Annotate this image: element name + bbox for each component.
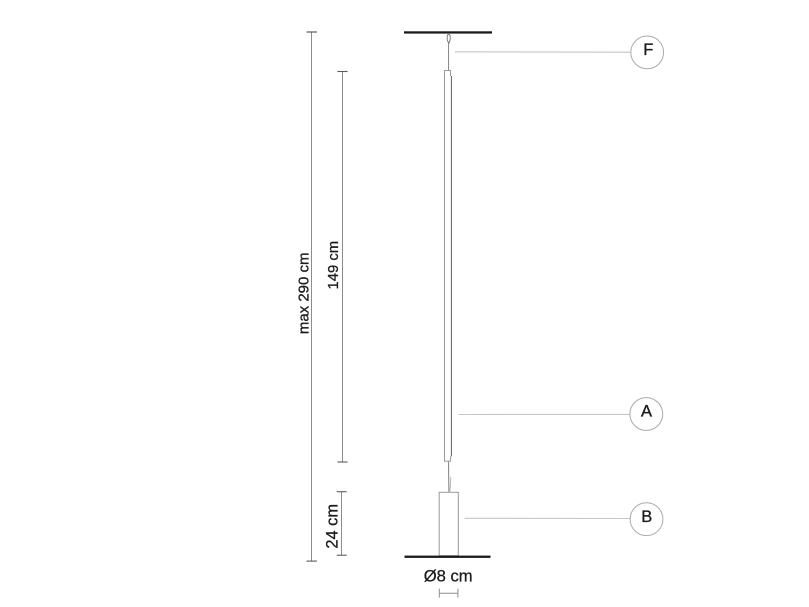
svg-text:B: B [641,508,652,526]
svg-text:A: A [641,403,652,421]
svg-text:F: F [643,41,653,59]
svg-text:149 cm: 149 cm [326,241,342,290]
svg-text:Ø8 cm: Ø8 cm [424,566,473,585]
svg-text:max 290 cm: max 290 cm [295,252,312,334]
svg-text:24 cm: 24 cm [323,504,341,549]
